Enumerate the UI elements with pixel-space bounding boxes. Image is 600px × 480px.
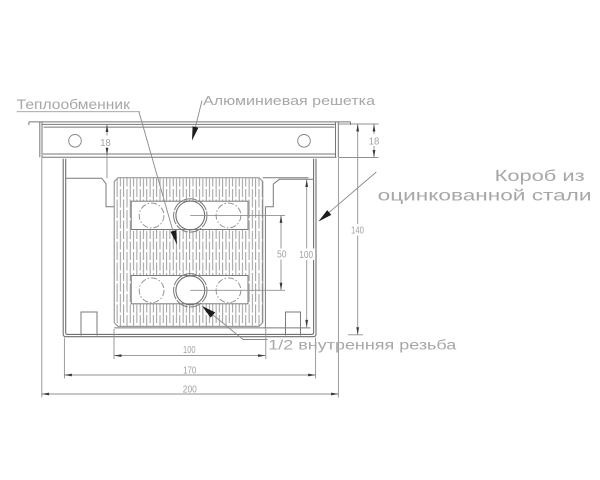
svg-text:Короб из: Короб из [495, 168, 585, 185]
svg-text:18: 18 [369, 137, 380, 148]
svg-text:100: 100 [299, 250, 313, 261]
svg-text:50: 50 [277, 249, 287, 260]
svg-text:100: 100 [183, 345, 196, 356]
svg-text:Алюминиевая решетка: Алюминиевая решетка [203, 93, 376, 108]
svg-text:1/2 внутренняя резьба: 1/2 внутренняя резьба [268, 337, 457, 352]
svg-text:оцинкованной стали: оцинкованной стали [378, 188, 592, 205]
svg-text:170: 170 [183, 366, 197, 377]
svg-text:200: 200 [183, 385, 197, 396]
svg-text:140: 140 [351, 226, 364, 237]
svg-text:Теплообменник: Теплообменник [17, 96, 131, 112]
svg-text:18: 18 [100, 138, 111, 149]
